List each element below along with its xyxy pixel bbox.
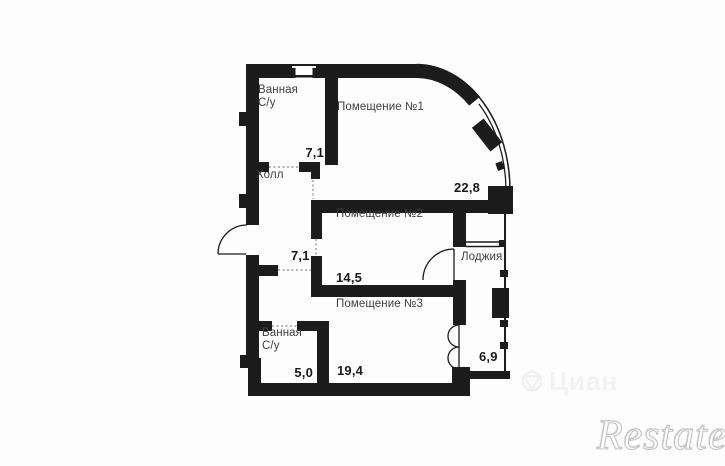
openings-group: [269, 167, 316, 326]
area-hall: 7,1: [291, 248, 310, 263]
area-room-3: 19,4: [337, 363, 363, 378]
label-room-2: Помещение №2: [336, 208, 423, 221]
label-bathroom-top: Ванная С/у: [258, 84, 298, 110]
floor-plan-screenshot: Ванная С/у 7,1 Помещение №1 22,8 Холл 7,…: [0, 0, 725, 466]
area-loggia: 6,9: [479, 349, 498, 364]
area-room-2: 14,5: [336, 270, 362, 285]
area-room-1: 22,8: [454, 180, 480, 195]
label-room-3: Помещение №3: [336, 298, 423, 311]
curved-facade-group: [417, 65, 510, 191]
label-bathroom-bottom-line2: С/у: [262, 340, 302, 353]
label-loggia: Лоджия: [461, 251, 502, 264]
label-bathroom-top-line1: Ванная: [258, 84, 298, 97]
label-room-1: Помещение №1: [337, 101, 424, 114]
label-bathroom-top-line2: С/у: [258, 97, 298, 110]
cian-logo-icon: ⎊: [520, 367, 545, 397]
windows-group: [292, 64, 316, 78]
balcony-double-door-arc-top: [448, 325, 459, 347]
loggia-door-arc: [423, 249, 454, 280]
restate-watermark: Restate: [597, 412, 725, 460]
area-bathroom-top: 7,1: [296, 145, 324, 160]
entrance-door-arc: [218, 225, 247, 254]
balcony-double-door-arc-bottom: [448, 347, 459, 369]
label-bathroom-bottom-line1: Ванная: [262, 327, 302, 340]
cian-watermark-text: Циан: [549, 366, 618, 397]
area-bathroom-bottom: 5,0: [283, 365, 313, 380]
label-bathroom-bottom: Ванная С/у: [262, 327, 302, 353]
label-hall: Холл: [256, 169, 284, 182]
cian-watermark: ⎊ Циан: [520, 366, 618, 397]
